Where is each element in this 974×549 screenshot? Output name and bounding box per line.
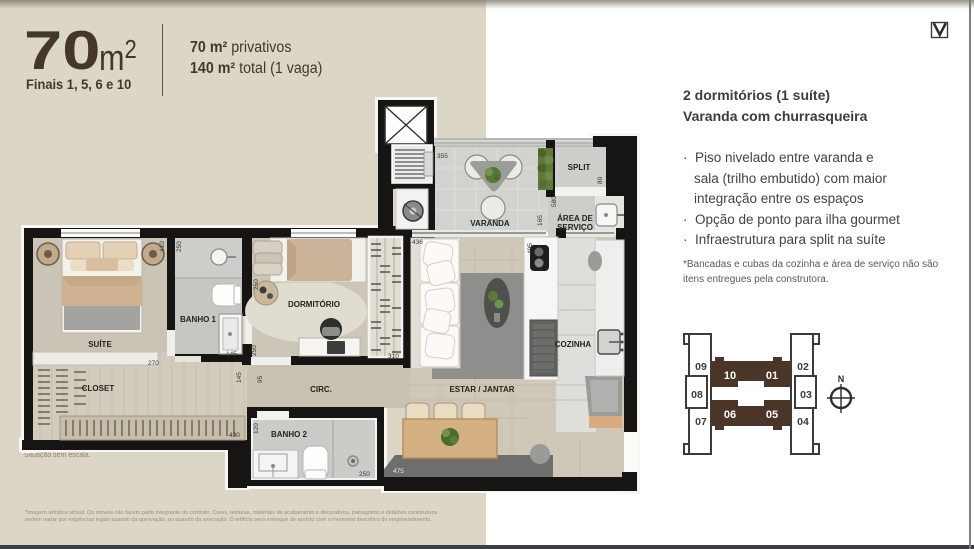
svg-text:250: 250 xyxy=(253,279,260,290)
svg-text:COZINHA: COZINHA xyxy=(555,340,592,349)
svg-text:250: 250 xyxy=(176,241,183,252)
svg-text:430: 430 xyxy=(229,432,240,439)
svg-text:ESTAR / JANTAR: ESTAR / JANTAR xyxy=(449,385,514,394)
svg-text:165: 165 xyxy=(537,215,544,226)
svg-text:09: 09 xyxy=(695,361,707,373)
svg-text:410: 410 xyxy=(159,241,166,252)
svg-text:N: N xyxy=(838,374,845,384)
svg-text:95: 95 xyxy=(257,375,264,383)
svg-text:495: 495 xyxy=(527,243,534,254)
svg-text:SUÍTE: SUÍTE xyxy=(88,340,112,349)
svg-text:145: 145 xyxy=(236,372,243,383)
svg-text:475: 475 xyxy=(393,468,404,475)
svg-text:250: 250 xyxy=(251,345,258,356)
svg-text:08: 08 xyxy=(691,389,703,401)
svg-text:04: 04 xyxy=(797,416,809,428)
svg-text:145: 145 xyxy=(226,351,237,358)
svg-text:VARANDA: VARANDA xyxy=(470,219,510,228)
svg-text:SPLIT: SPLIT xyxy=(568,163,591,172)
svg-text:CLOSET: CLOSET xyxy=(82,384,115,393)
svg-text:03: 03 xyxy=(800,389,812,401)
svg-text:02: 02 xyxy=(797,361,809,373)
svg-text:355: 355 xyxy=(437,153,448,160)
svg-text:01: 01 xyxy=(766,370,778,382)
svg-text:DORMITÓRIO: DORMITÓRIO xyxy=(288,300,340,309)
svg-text:SERVIÇO: SERVIÇO xyxy=(557,223,593,232)
svg-text:270: 270 xyxy=(148,360,159,367)
svg-text:436: 436 xyxy=(412,239,423,246)
svg-text:10: 10 xyxy=(724,370,736,382)
svg-text:250: 250 xyxy=(359,471,370,478)
svg-text:ÁREA DE: ÁREA DE xyxy=(557,214,593,223)
svg-text:580: 580 xyxy=(551,196,558,207)
svg-text:05: 05 xyxy=(766,409,778,421)
svg-text:120: 120 xyxy=(253,423,260,434)
svg-text:80: 80 xyxy=(597,176,604,184)
svg-text:BANHO 2: BANHO 2 xyxy=(271,430,308,439)
svg-text:CIRC.: CIRC. xyxy=(310,385,332,394)
svg-text:07: 07 xyxy=(695,416,707,428)
svg-text:BANHO 1: BANHO 1 xyxy=(180,315,217,324)
svg-text:06: 06 xyxy=(724,409,736,421)
svg-text:310: 310 xyxy=(388,353,399,360)
